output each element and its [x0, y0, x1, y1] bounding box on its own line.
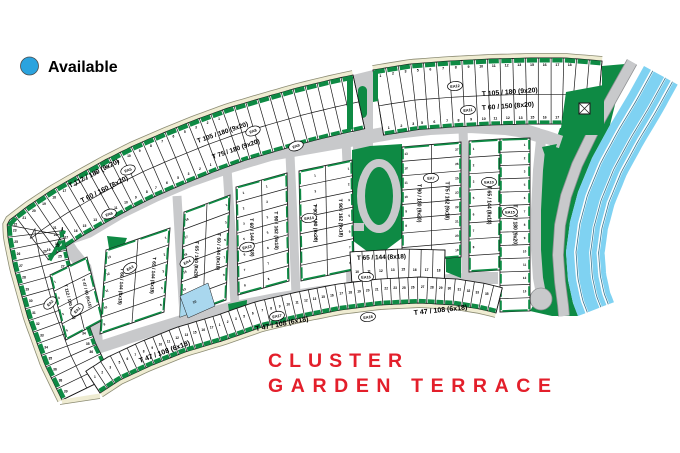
svg-text:25: 25: [14, 240, 18, 244]
svg-text:18: 18: [348, 291, 352, 295]
svg-text:28: 28: [22, 275, 26, 279]
svg-text:1: 1: [379, 74, 381, 78]
svg-text:1: 1: [210, 163, 212, 167]
svg-text:6: 6: [127, 357, 129, 361]
svg-text:22: 22: [54, 233, 58, 237]
svg-text:8: 8: [143, 349, 145, 353]
svg-text:6: 6: [429, 67, 431, 71]
svg-text:21: 21: [53, 226, 57, 230]
svg-text:16: 16: [413, 268, 417, 272]
svg-text:32: 32: [467, 289, 471, 293]
svg-text:6: 6: [166, 181, 168, 185]
svg-text:26: 26: [411, 285, 415, 289]
svg-text:17: 17: [425, 268, 429, 272]
svg-text:17: 17: [555, 63, 559, 67]
svg-text:25: 25: [58, 255, 62, 259]
svg-text:2: 2: [227, 320, 229, 324]
svg-text:7: 7: [161, 139, 163, 143]
svg-text:8: 8: [455, 66, 457, 70]
svg-text:2: 2: [199, 167, 201, 171]
svg-text:9: 9: [470, 118, 472, 122]
svg-text:39: 39: [64, 390, 68, 394]
svg-text:13: 13: [93, 218, 97, 222]
svg-text:15: 15: [193, 330, 197, 334]
svg-text:9: 9: [135, 196, 137, 200]
svg-text:8: 8: [150, 144, 152, 148]
svg-text:13: 13: [519, 116, 523, 120]
svg-text:28: 28: [430, 286, 434, 290]
svg-text:7: 7: [134, 353, 136, 357]
svg-text:19: 19: [357, 290, 361, 294]
svg-text:11: 11: [167, 339, 171, 343]
svg-text:16: 16: [201, 328, 205, 332]
svg-text:34: 34: [82, 332, 86, 336]
svg-text:9: 9: [468, 65, 470, 69]
svg-text:8: 8: [458, 118, 460, 122]
svg-text:13: 13: [404, 152, 408, 156]
svg-text:17: 17: [555, 116, 559, 120]
svg-text:3: 3: [188, 172, 190, 176]
svg-text:35: 35: [48, 357, 52, 361]
svg-text:T 65 / 144 (8x18): T 65 / 144 (8x18): [486, 186, 492, 225]
svg-text:EA7: EA7: [427, 176, 435, 180]
svg-text:12: 12: [506, 116, 510, 120]
svg-text:T 90 / 162 (9x18): T 90 / 162 (9x18): [337, 199, 344, 238]
svg-text:EA15: EA15: [505, 211, 515, 215]
svg-text:7: 7: [261, 309, 263, 313]
svg-text:32: 32: [36, 322, 40, 326]
svg-text:12: 12: [379, 269, 383, 273]
svg-text:T 75 / 162 (9x18): T 75 / 162 (9x18): [444, 182, 450, 221]
svg-text:31: 31: [32, 311, 36, 315]
svg-text:20: 20: [32, 209, 36, 213]
svg-text:19: 19: [47, 248, 51, 252]
svg-text:21: 21: [375, 287, 379, 291]
svg-text:10: 10: [482, 117, 486, 121]
svg-text:12: 12: [505, 63, 509, 67]
svg-text:1: 1: [218, 117, 220, 121]
svg-text:EA16: EA16: [361, 275, 371, 279]
svg-text:15: 15: [83, 224, 87, 228]
svg-text:10: 10: [124, 201, 128, 205]
svg-text:27: 27: [19, 264, 23, 268]
svg-text:15: 15: [530, 63, 534, 67]
svg-text:6: 6: [172, 135, 174, 139]
svg-text:16: 16: [330, 293, 334, 297]
svg-text:22: 22: [384, 287, 388, 291]
svg-text:12: 12: [304, 299, 308, 303]
svg-text:3: 3: [109, 365, 111, 369]
svg-text:11: 11: [295, 300, 299, 304]
svg-text:12: 12: [175, 336, 179, 340]
svg-text:23: 23: [393, 286, 397, 290]
svg-text:13: 13: [185, 333, 189, 337]
svg-text:7: 7: [446, 119, 448, 123]
svg-text:20: 20: [455, 234, 459, 238]
svg-text:15: 15: [401, 268, 405, 272]
svg-text:11: 11: [492, 64, 496, 68]
svg-text:3: 3: [195, 125, 197, 129]
svg-text:18: 18: [568, 63, 572, 67]
svg-text:18: 18: [52, 195, 56, 199]
svg-text:2: 2: [207, 121, 209, 125]
svg-text:17: 17: [64, 236, 68, 240]
svg-text:5: 5: [417, 68, 419, 72]
svg-text:8: 8: [146, 190, 148, 194]
svg-text:8: 8: [270, 306, 272, 310]
svg-text:9: 9: [151, 346, 153, 350]
svg-text:10: 10: [286, 302, 290, 306]
svg-text:17: 17: [339, 292, 343, 296]
svg-text:36: 36: [89, 350, 93, 354]
svg-text:29: 29: [439, 286, 443, 290]
svg-text:17: 17: [63, 189, 67, 193]
svg-text:EA10: EA10: [484, 181, 494, 185]
svg-text:27: 27: [455, 147, 459, 151]
svg-text:10: 10: [523, 249, 527, 253]
svg-text:5: 5: [243, 314, 245, 318]
svg-text:20: 20: [366, 288, 370, 292]
svg-text:33: 33: [40, 334, 44, 338]
svg-text:2: 2: [392, 72, 394, 76]
svg-text:9: 9: [139, 149, 141, 153]
svg-text:16: 16: [543, 116, 547, 120]
svg-text:31: 31: [458, 288, 462, 292]
svg-text:5: 5: [177, 176, 179, 180]
svg-text:13: 13: [523, 289, 527, 293]
svg-text:23: 23: [13, 229, 17, 233]
svg-text:22: 22: [14, 223, 18, 227]
svg-text:30: 30: [29, 299, 33, 303]
svg-text:10: 10: [355, 270, 359, 274]
svg-text:13: 13: [313, 297, 317, 301]
svg-text:Available: Available: [48, 59, 118, 76]
svg-text:CLUSTER: CLUSTER: [268, 350, 409, 372]
svg-text:18: 18: [437, 269, 441, 273]
svg-text:26: 26: [17, 252, 21, 256]
svg-text:1: 1: [388, 126, 390, 130]
svg-text:30: 30: [448, 287, 452, 291]
svg-text:GARDEN TERRACE: GARDEN TERRACE: [268, 375, 559, 397]
svg-text:34: 34: [44, 345, 48, 349]
svg-text:10: 10: [159, 343, 163, 347]
svg-text:13: 13: [517, 63, 521, 67]
svg-text:11: 11: [493, 117, 497, 121]
svg-text:2: 2: [400, 124, 402, 128]
svg-text:18: 18: [55, 242, 59, 246]
svg-text:27: 27: [421, 285, 425, 289]
svg-text:19: 19: [455, 248, 459, 252]
svg-text:21: 21: [22, 216, 26, 220]
svg-text:5: 5: [119, 361, 121, 365]
svg-text:35: 35: [86, 342, 90, 346]
svg-text:9: 9: [279, 304, 281, 308]
svg-text:25: 25: [402, 286, 406, 290]
svg-text:6: 6: [252, 311, 254, 315]
svg-text:16: 16: [74, 229, 78, 233]
svg-text:16: 16: [543, 63, 547, 67]
svg-text:3: 3: [405, 70, 407, 74]
svg-text:33: 33: [476, 290, 480, 294]
svg-text:1: 1: [219, 323, 221, 327]
svg-text:11: 11: [523, 263, 527, 267]
svg-text:17: 17: [210, 325, 214, 329]
svg-text:T 90 / 162 (9x18): T 90 / 162 (9x18): [272, 211, 279, 250]
svg-text:6: 6: [433, 120, 435, 124]
svg-text:5: 5: [184, 130, 186, 134]
svg-text:26: 26: [455, 162, 459, 166]
svg-text:38: 38: [59, 378, 63, 382]
svg-text:5: 5: [421, 121, 423, 125]
svg-text:23: 23: [455, 191, 459, 195]
svg-text:35: 35: [485, 292, 489, 296]
svg-text:25: 25: [455, 176, 459, 180]
svg-text:10: 10: [404, 195, 408, 199]
svg-text:29: 29: [25, 287, 29, 291]
svg-text:3: 3: [412, 122, 414, 126]
svg-text:1: 1: [94, 375, 96, 379]
svg-text:21: 21: [455, 219, 459, 223]
svg-text:10: 10: [127, 154, 131, 158]
svg-text:12: 12: [523, 276, 527, 280]
svg-text:T 90 / 180 (9x20): T 90 / 180 (9x20): [415, 184, 421, 223]
svg-text:10: 10: [479, 64, 483, 68]
svg-text:2: 2: [101, 370, 103, 374]
svg-text:7: 7: [442, 66, 444, 70]
svg-text:12: 12: [404, 166, 408, 170]
svg-text:15: 15: [530, 116, 534, 120]
svg-text:15: 15: [321, 295, 325, 299]
svg-text:22: 22: [455, 205, 459, 209]
svg-text:13: 13: [391, 268, 395, 272]
svg-text:7: 7: [155, 186, 157, 190]
svg-text:3: 3: [235, 317, 237, 321]
svg-text:19: 19: [42, 202, 46, 206]
svg-text:36: 36: [53, 367, 57, 371]
svg-text:11: 11: [404, 181, 408, 185]
